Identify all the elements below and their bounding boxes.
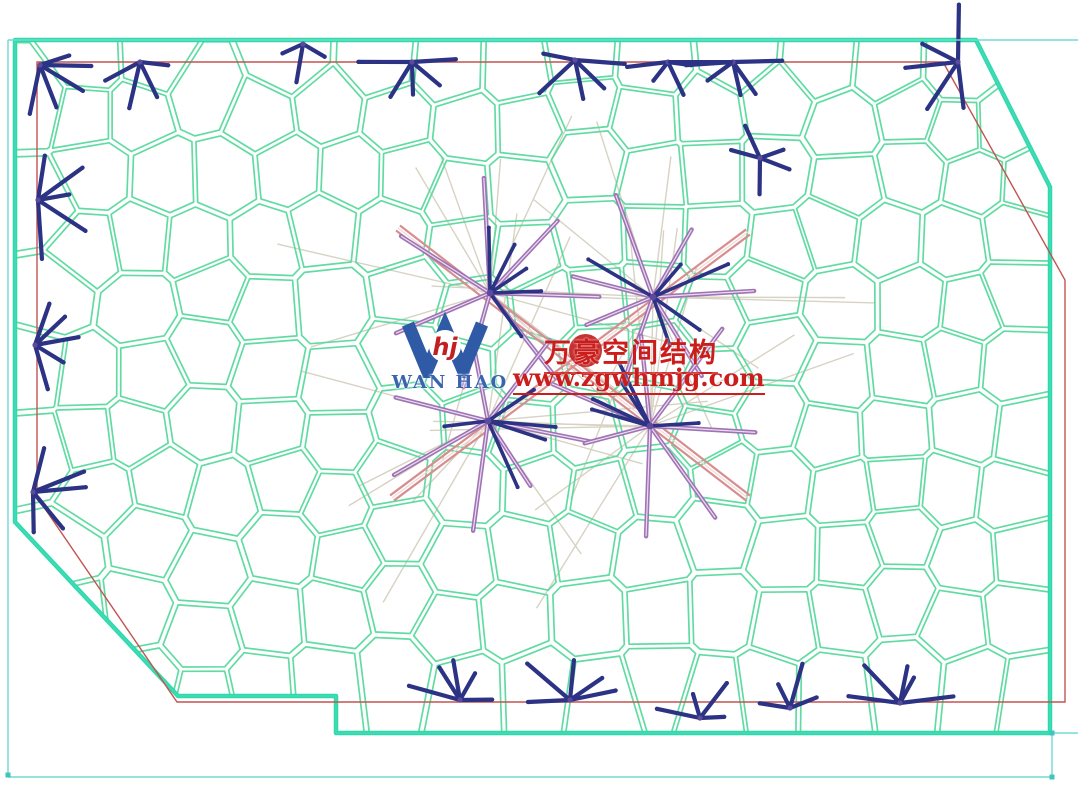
logo-monogram: hj (432, 333, 458, 361)
support-node-star (684, 59, 784, 97)
voronoi-roof-plan-canvas (0, 0, 1080, 810)
logo-wordmark: WAN HAO (388, 372, 512, 393)
structural-plan-screenshot: hj WAN HAO 万豪空间结构 www.zgwhmjg.com (0, 0, 1080, 810)
support-node-star (35, 154, 87, 261)
support-node-star (407, 658, 494, 702)
support-node-star (30, 446, 87, 534)
support-node-star (525, 658, 618, 704)
support-node-star (356, 57, 458, 99)
wanhao-logo: hj (398, 312, 508, 378)
support-node-star (32, 302, 80, 392)
frame-layer (6, 40, 1079, 780)
support-node-star (758, 662, 819, 711)
support-node-star (655, 681, 729, 721)
support-node-star (903, 3, 965, 111)
watermark-website-url: www.zgwhmjg.com (513, 363, 765, 395)
